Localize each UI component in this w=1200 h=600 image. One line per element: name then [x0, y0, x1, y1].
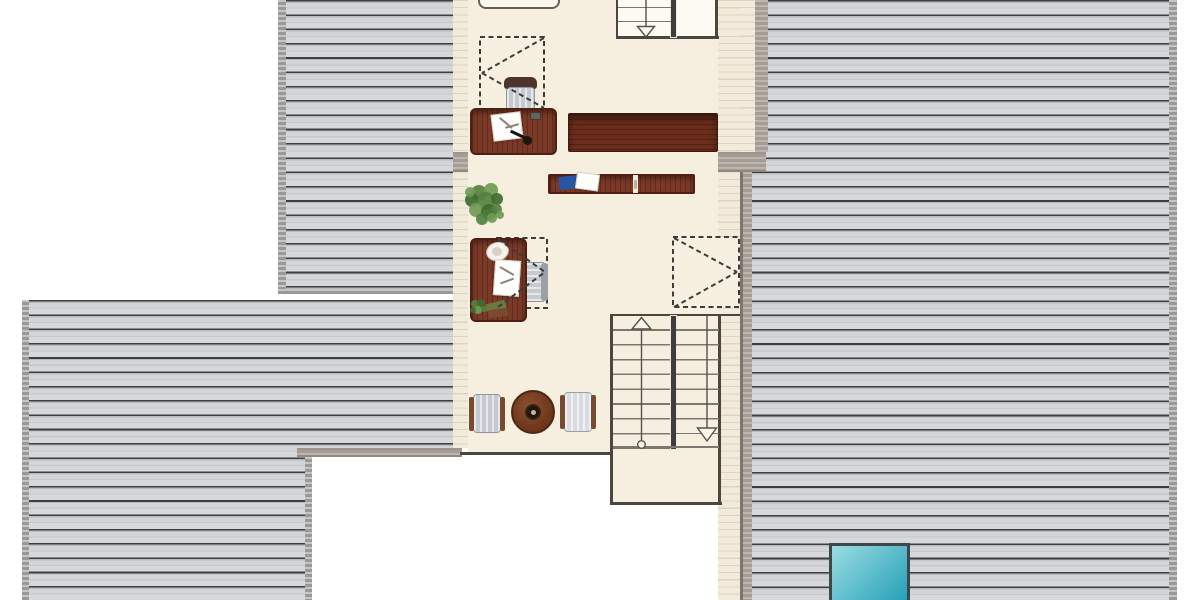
lounge-chair-right-armrest-a: [560, 395, 565, 429]
desk-2-papers: [493, 259, 521, 297]
roof-skylight-glass: [829, 543, 910, 600]
roof-top-left-edge-bottom: [278, 289, 453, 294]
cabinet-top-edge: [478, 0, 560, 9]
main-stairs-treads-right-flight: [676, 316, 719, 434]
cabinet-row-handle: [634, 180, 637, 189]
eave-strip-right: [718, 0, 740, 600]
stairwell-bottom-wall-line: [610, 502, 722, 505]
room-bottom-wall-line: [460, 452, 613, 455]
eave-strip-left: [453, 0, 468, 448]
wall-bottom-horizontal: [297, 448, 462, 457]
upper-stairs-tread-1: [618, 7, 671, 9]
roof-bottom-left-edge-left: [22, 300, 29, 600]
wall-right: [740, 172, 752, 600]
cabinet-row-paper: [575, 171, 600, 191]
roof-bottom-left-edge-right: [305, 457, 312, 600]
round-table-center-dot: [531, 410, 536, 415]
desk-chair-2-backrest: [541, 263, 548, 301]
lounge-chair-right-armrest-b: [591, 395, 596, 429]
upper-stairs-divider: [671, 0, 676, 37]
roof-top-left-edge-left: [278, 0, 286, 293]
roof-right: [752, 0, 1169, 600]
lounge-chair-right-seat: [564, 392, 592, 432]
floor-stairwell-extension: [612, 448, 720, 503]
main-stairs-divider: [671, 316, 676, 449]
lounge-chair-left-seat: [473, 394, 501, 433]
main-stairs-landing-line: [613, 446, 719, 448]
desk-1-round-object: [523, 136, 532, 145]
upper-stairs-right-line: [715, 0, 718, 38]
floor-plan-canvas: [0, 0, 1200, 600]
void-bottom-left: [312, 457, 453, 600]
wall-upper-right: [755, 0, 768, 152]
main-stairs-treads-left-flight: [613, 316, 670, 449]
upper-stairs-bottom-line: [616, 36, 719, 39]
desk-1-small-item: [530, 112, 541, 120]
desk-2-white-object-center: [492, 247, 502, 256]
upper-stairs-tread-2: [618, 21, 671, 23]
sideboard-long: [568, 113, 718, 152]
lounge-chair-left-armrest-a: [469, 397, 474, 431]
eave-strip-right-upper: [740, 0, 755, 152]
roof-right-edge-right: [1169, 0, 1177, 600]
roof-top-left: [278, 0, 453, 293]
lounge-chair-left-armrest-b: [500, 397, 505, 431]
